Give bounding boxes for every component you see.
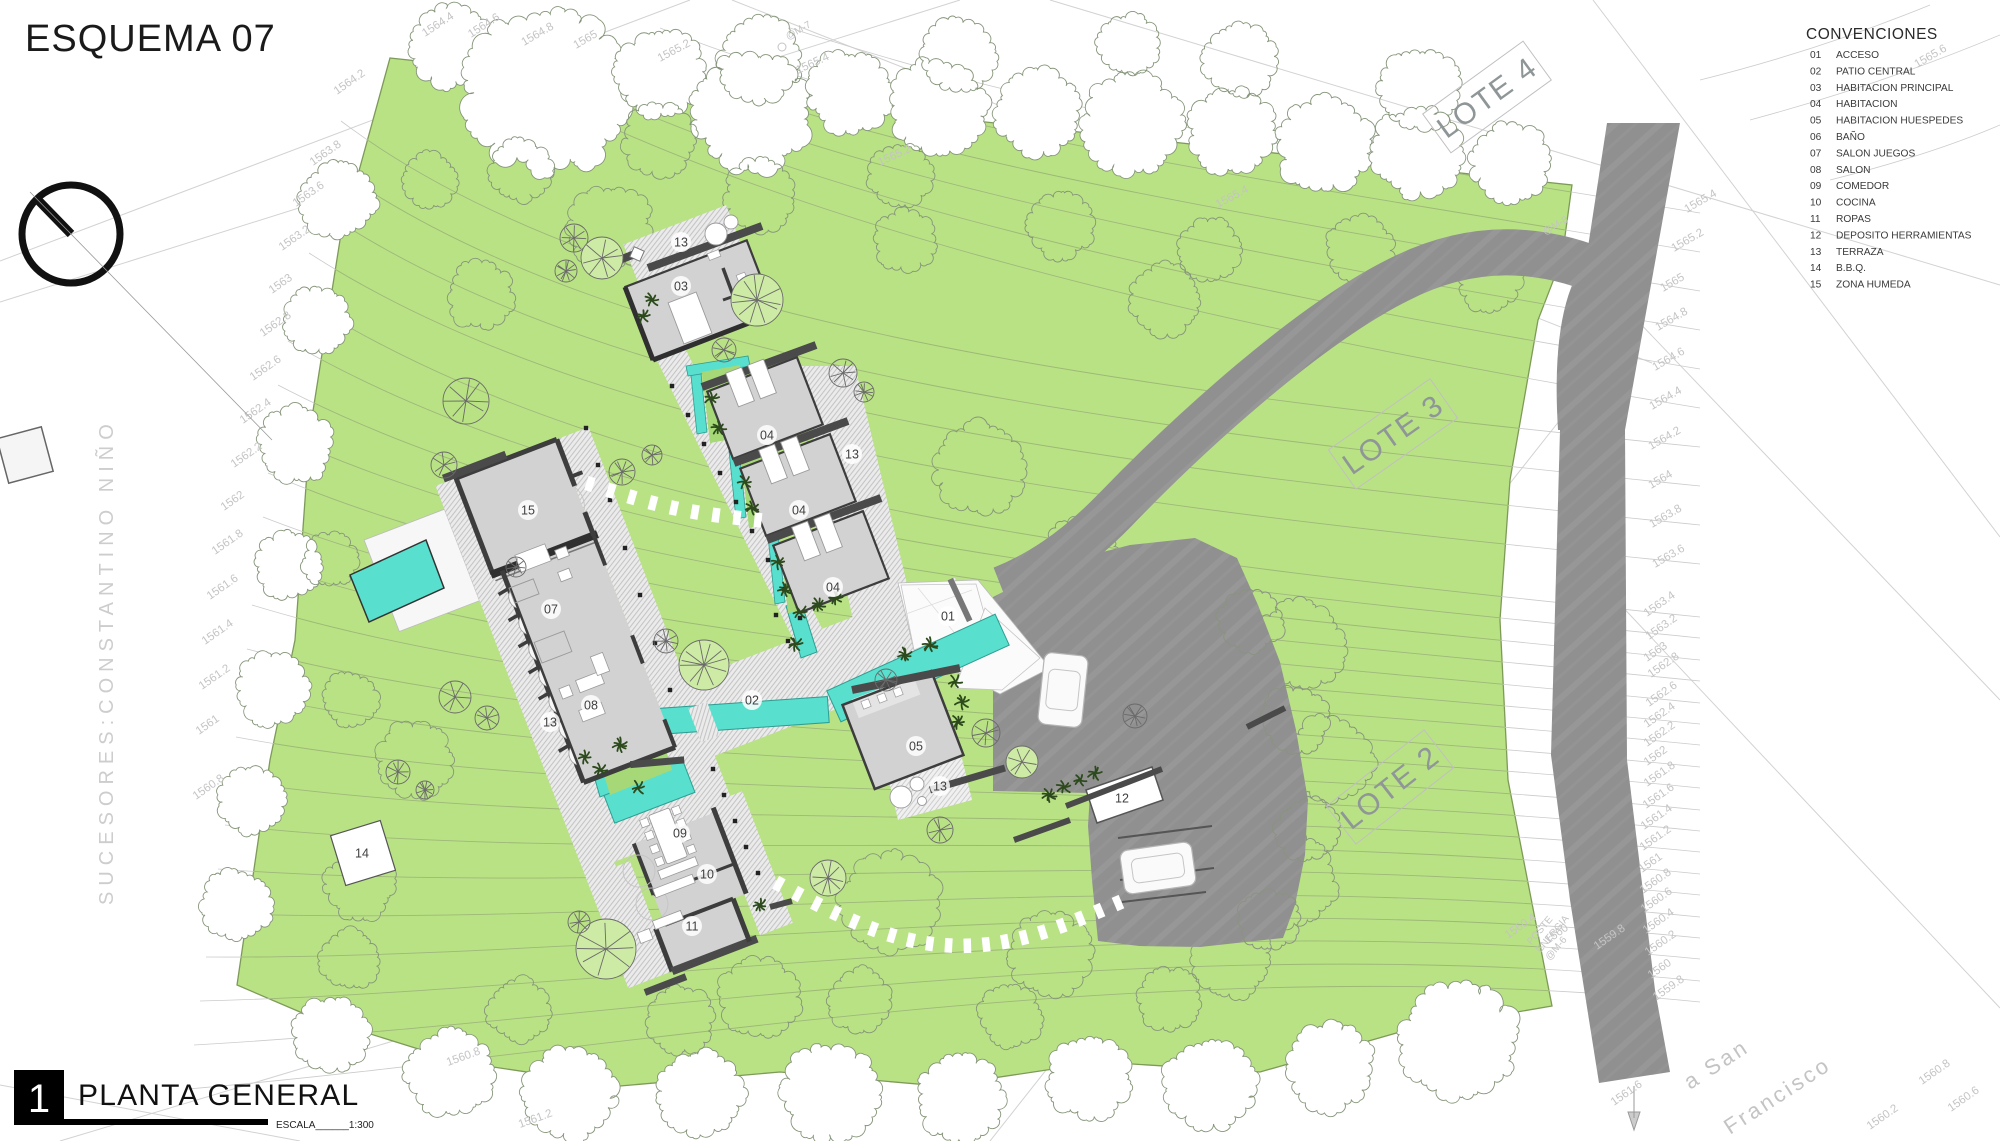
svg-text:04: 04: [760, 429, 774, 443]
svg-text:SALON JUEGOS: SALON JUEGOS: [1836, 148, 1915, 159]
svg-text:12: 12: [1115, 792, 1129, 806]
svg-text:12: 12: [1810, 230, 1822, 241]
svg-text:13: 13: [543, 716, 557, 730]
svg-text:09: 09: [673, 827, 687, 841]
svg-text:ESQUEMA 07: ESQUEMA 07: [25, 18, 276, 60]
svg-text:08: 08: [1810, 165, 1822, 176]
svg-text:03: 03: [1810, 83, 1822, 94]
svg-text:TERRAZA: TERRAZA: [1836, 247, 1884, 258]
svg-text:11: 11: [1810, 214, 1821, 225]
svg-text:COMEDOR: COMEDOR: [1836, 181, 1889, 192]
svg-text:04: 04: [792, 504, 806, 518]
svg-text:13: 13: [845, 448, 859, 462]
svg-text:ZONA HUMEDA: ZONA HUMEDA: [1836, 280, 1911, 291]
svg-text:ESCALA______1:300: ESCALA______1:300: [276, 1120, 374, 1131]
svg-text:04: 04: [1810, 99, 1822, 110]
svg-text:1: 1: [28, 1077, 50, 1121]
svg-text:HABITACION PRINCIPAL: HABITACION PRINCIPAL: [1836, 83, 1954, 94]
svg-text:05: 05: [1810, 116, 1822, 127]
svg-text:06: 06: [1810, 132, 1822, 143]
svg-text:01: 01: [1810, 50, 1822, 61]
svg-text:02: 02: [1810, 66, 1822, 77]
svg-text:13: 13: [674, 236, 688, 250]
svg-text:HABITACION: HABITACION: [1836, 99, 1898, 110]
svg-text:DEPOSITO HERRAMIENTAS: DEPOSITO HERRAMIENTAS: [1836, 230, 1972, 241]
svg-text:13: 13: [933, 780, 947, 794]
svg-text:15: 15: [1810, 280, 1822, 291]
svg-text:08: 08: [584, 699, 598, 713]
svg-text:01: 01: [941, 610, 955, 624]
svg-text:09: 09: [1810, 181, 1822, 192]
svg-text:SALON: SALON: [1836, 165, 1871, 176]
svg-text:13: 13: [1810, 247, 1822, 258]
svg-text:ROPAS: ROPAS: [1836, 214, 1871, 225]
svg-text:10: 10: [1810, 198, 1822, 209]
svg-text:B.B.Q.: B.B.Q.: [1836, 263, 1866, 274]
svg-text:05: 05: [909, 740, 923, 754]
svg-text:03: 03: [674, 280, 688, 294]
svg-text:CONVENCIONES: CONVENCIONES: [1806, 26, 1938, 43]
svg-text:14: 14: [1810, 263, 1822, 274]
svg-text:10: 10: [700, 868, 714, 882]
svg-text:PLANTA GENERAL: PLANTA GENERAL: [78, 1079, 359, 1112]
svg-text:14: 14: [355, 847, 369, 861]
svg-text:11: 11: [686, 920, 699, 934]
svg-text:BAÑO: BAÑO: [1836, 130, 1865, 143]
svg-text:COCINA: COCINA: [1836, 198, 1876, 209]
svg-text:02: 02: [745, 694, 759, 708]
svg-text:HABITACION HUESPEDES: HABITACION HUESPEDES: [1836, 116, 1963, 127]
svg-text:PATIO CENTRAL: PATIO CENTRAL: [1836, 66, 1916, 77]
svg-text:07: 07: [1810, 148, 1822, 159]
svg-text:04: 04: [826, 581, 840, 595]
svg-text:ACCESO: ACCESO: [1836, 50, 1879, 61]
svg-text:15: 15: [521, 504, 535, 518]
svg-text:SUCESORES:CONSTANTINO NIÑO: SUCESORES:CONSTANTINO NIÑO: [94, 418, 118, 905]
svg-text:07: 07: [544, 603, 558, 617]
